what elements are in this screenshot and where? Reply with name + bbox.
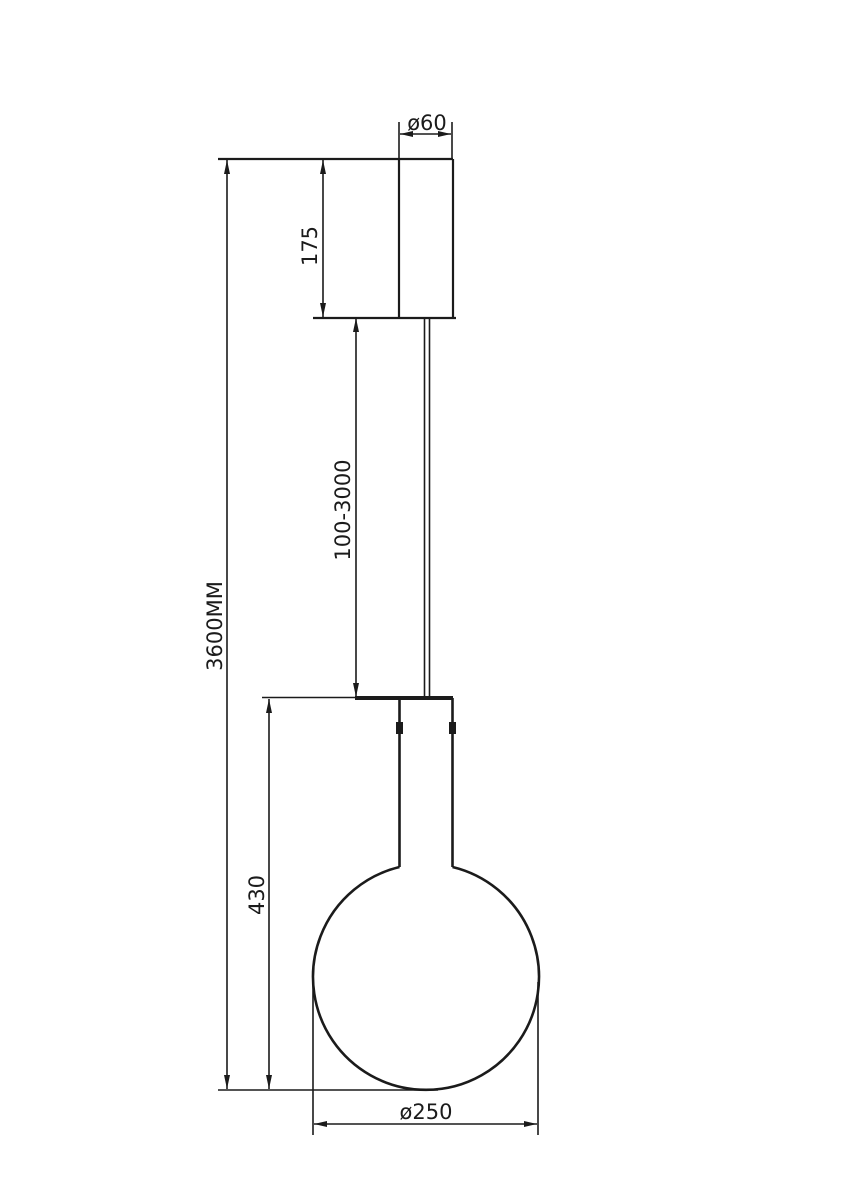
dimension-canopy-diameter: ø60 (399, 111, 452, 158)
dim-label-total-height: 3600MM (203, 581, 227, 671)
dim-cable-bottom-arrow-icon (353, 683, 359, 697)
dim3600-bottom-arrow-icon (224, 1075, 230, 1089)
socket-left-clip (396, 722, 403, 734)
suspension-cable (425, 318, 430, 697)
dimension-lamp-height: 430 (245, 699, 272, 1089)
dimension-total-height: 3600MM (203, 160, 230, 1089)
dim175-top-arrow-icon (320, 160, 326, 174)
dim-label-lamp-height: 430 (245, 875, 269, 915)
dim430-bottom-arrow-icon (266, 1075, 272, 1089)
lamp-socket (262, 698, 456, 868)
dim3600-top-arrow-icon (224, 160, 230, 174)
dim-label-cable-length: 100-3000 (331, 459, 355, 560)
pendant-lamp-dimension-drawing: ø60 175 100-3000 3600MM 430 (0, 0, 848, 1200)
ceiling-canopy (218, 159, 456, 318)
dim-label-shade-diameter: ø250 (400, 1100, 453, 1124)
dim250-right-arrow-icon (524, 1121, 537, 1127)
dimension-canopy-height: 175 (298, 160, 326, 317)
dim430-top-arrow-icon (266, 699, 272, 713)
dim250-left-arrow-icon (314, 1121, 327, 1127)
technical-drawing-canvas: ø60 175 100-3000 3600MM 430 (0, 0, 848, 1200)
dim-label-canopy-height: 175 (298, 226, 322, 266)
glass-globe-outline (313, 867, 539, 1090)
dimension-cable-length: 100-3000 (331, 318, 359, 697)
dim175-bottom-arrow-icon (320, 303, 326, 317)
dim-cable-top-arrow-icon (353, 318, 359, 332)
socket-right-clip (449, 722, 456, 734)
dim-label-canopy-diameter: ø60 (407, 111, 447, 135)
